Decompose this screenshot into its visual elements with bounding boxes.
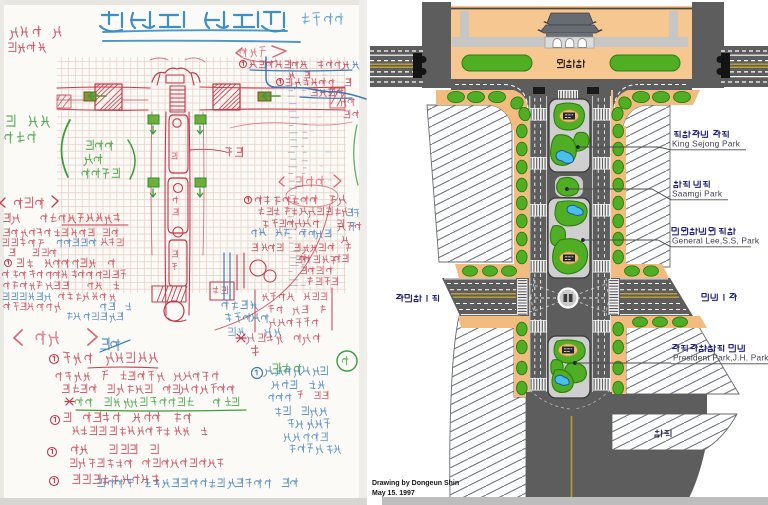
svg-text:May 15. 1997: May 15. 1997 <box>372 490 415 497</box>
svg-text:Saamgi Park: Saamgi Park <box>672 189 723 199</box>
svg-text:King Sejong Park: King Sejong Park <box>672 139 741 149</box>
svg-text:President Park,J.H. Park: President Park,J.H. Park <box>673 353 768 363</box>
svg-text:Drawing by Dongeun Shin: Drawing by Dongeun Shin <box>372 480 459 487</box>
svg-text:General Lee,S.S, Park: General Lee,S.S, Park <box>672 236 760 246</box>
